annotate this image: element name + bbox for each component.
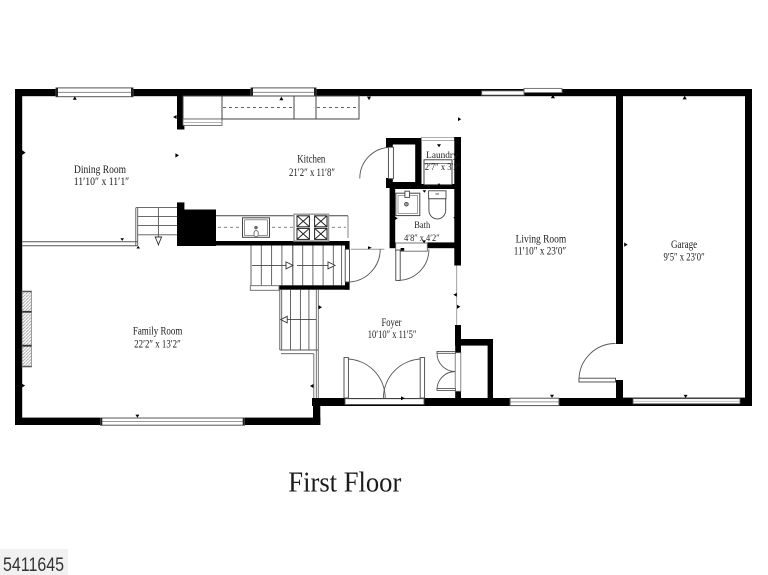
svg-text:10′10″ x 11′5″: 10′10″ x 11′5″ [368, 329, 417, 341]
svg-text:Bath: Bath [414, 220, 430, 231]
svg-text:Laundry: Laundry [426, 150, 458, 161]
svg-text:5411645: 5411645 [3, 555, 64, 575]
svg-text:4′8″ x 4′2″: 4′8″ x 4′2″ [404, 233, 440, 244]
svg-text:Family Room: Family Room [133, 326, 183, 338]
svg-text:Foyer: Foyer [382, 317, 402, 329]
svg-text:2′7″ x 3′2″: 2′7″ x 3′2″ [425, 162, 462, 173]
svg-text:9′5″ x 23′0″: 9′5″ x 23′0″ [664, 252, 705, 264]
svg-text:Garage: Garage [671, 239, 697, 251]
svg-text:21′2″ x 11′8″: 21′2″ x 11′8″ [289, 167, 335, 179]
svg-text:Dining Room: Dining Room [74, 164, 126, 176]
svg-text:22′2″ x 13′2″: 22′2″ x 13′2″ [134, 339, 181, 351]
svg-text:First Floor: First Floor [288, 468, 402, 499]
svg-text:Living Room: Living Room [516, 234, 567, 246]
svg-text:11′10″ x 23′0″: 11′10″ x 23′0″ [514, 246, 567, 258]
svg-text:Kitchen: Kitchen [297, 154, 325, 166]
svg-text:11′10″ x 11′1″: 11′10″ x 11′1″ [74, 176, 130, 188]
